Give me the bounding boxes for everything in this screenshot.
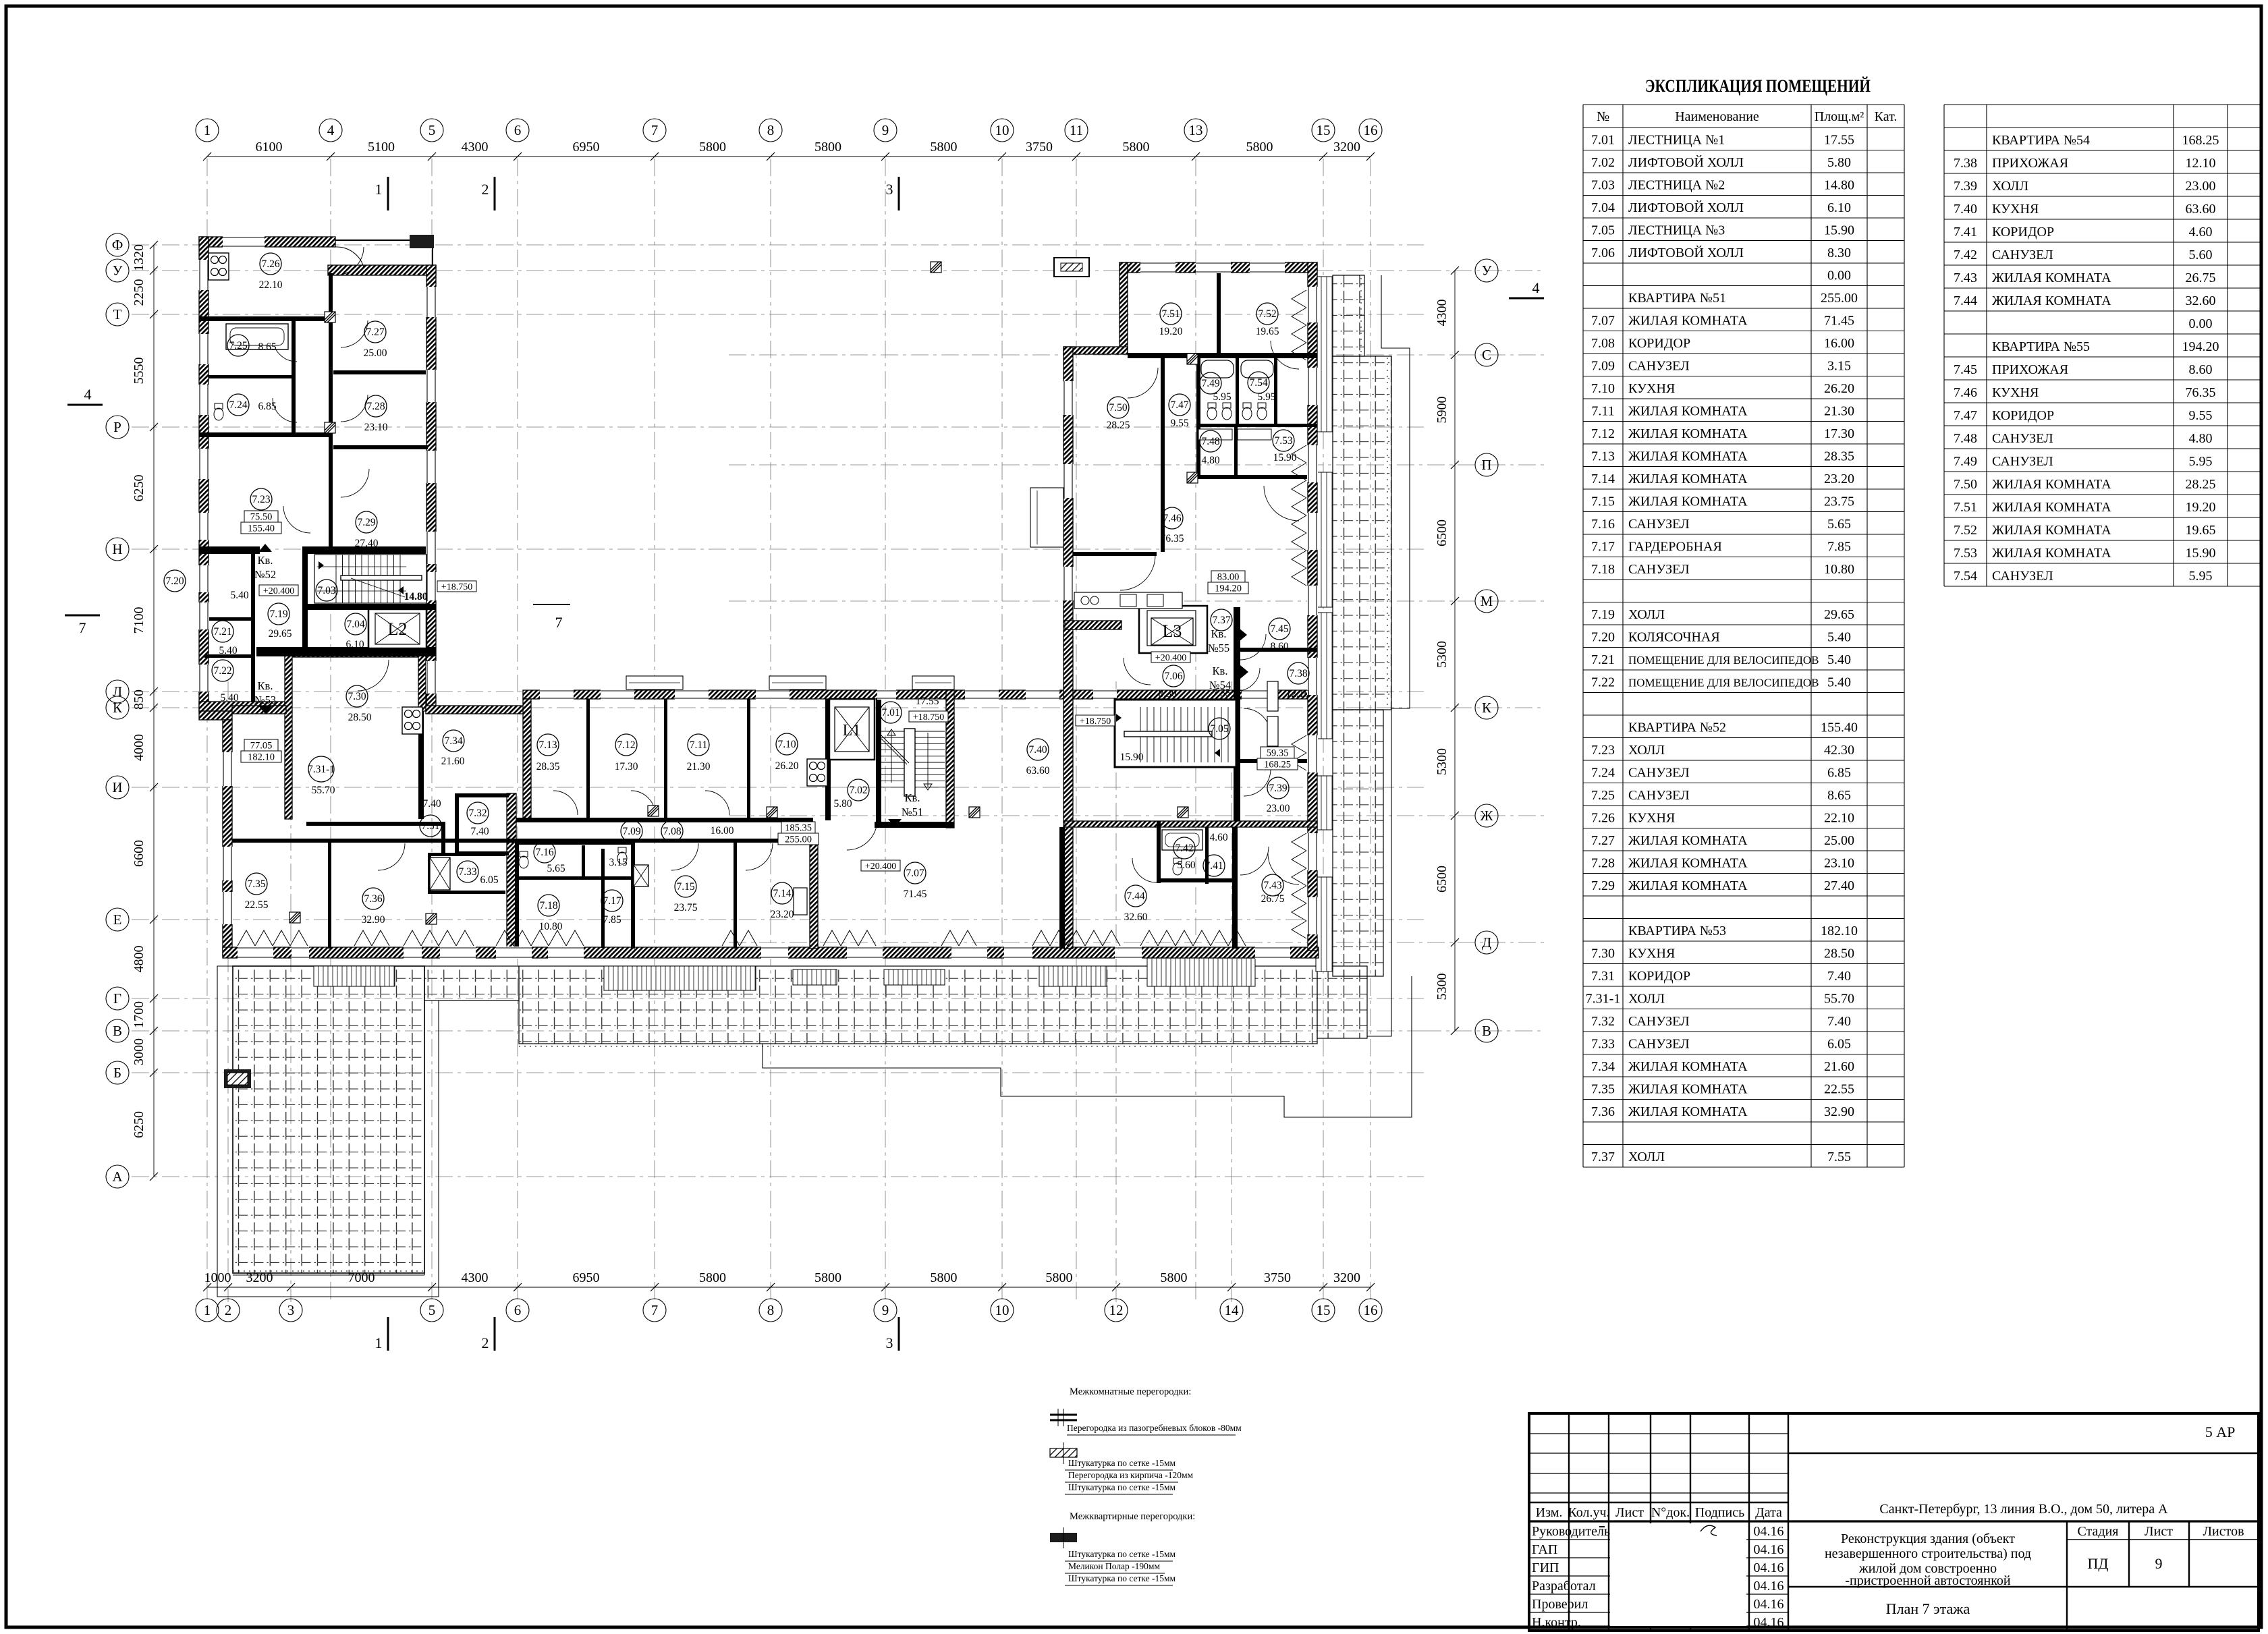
svg-text:3200: 3200 <box>1333 140 1360 154</box>
svg-text:5300: 5300 <box>1435 748 1449 775</box>
svg-text:42.30: 42.30 <box>1824 743 1854 758</box>
svg-text:63.60: 63.60 <box>1026 765 1050 777</box>
svg-text:10.80: 10.80 <box>1824 562 1854 577</box>
svg-text:14: 14 <box>1225 1302 1240 1318</box>
svg-text:15.90: 15.90 <box>1273 452 1297 463</box>
svg-text:55.70: 55.70 <box>312 785 335 796</box>
svg-text:ЖИЛАЯ КОМНАТА: ЖИЛАЯ КОМНАТА <box>1628 1104 1748 1119</box>
svg-text:6250: 6250 <box>132 1111 146 1138</box>
svg-text:71.45: 71.45 <box>1824 314 1854 329</box>
svg-text:8.30: 8.30 <box>1158 688 1176 700</box>
svg-text:4.80: 4.80 <box>2189 431 2213 446</box>
svg-text:76.35: 76.35 <box>2186 385 2216 400</box>
svg-text:28.35: 28.35 <box>536 761 560 772</box>
svg-text:7.31: 7.31 <box>1591 969 1615 984</box>
svg-text:12.10: 12.10 <box>2186 156 2216 171</box>
svg-text:7.34: 7.34 <box>444 735 462 747</box>
svg-text:6.10: 6.10 <box>1827 200 1851 215</box>
svg-text:ЖИЛАЯ КОМНАТА: ЖИЛАЯ КОМНАТА <box>1628 833 1748 848</box>
svg-text:+18.750: +18.750 <box>1080 716 1111 727</box>
svg-text:15: 15 <box>1317 1302 1331 1318</box>
svg-text:21.60: 21.60 <box>1824 1059 1854 1074</box>
svg-text:N°док.: N°док. <box>1651 1505 1690 1520</box>
svg-text:194.20: 194.20 <box>1215 584 1242 594</box>
svg-text:5800: 5800 <box>931 1270 958 1285</box>
svg-text:7.39: 7.39 <box>1954 179 1977 194</box>
svg-text:ЖИЛАЯ КОМНАТА: ЖИЛАЯ КОМНАТА <box>1992 293 2111 308</box>
svg-text:Кв.: Кв. <box>258 554 273 567</box>
svg-text:6500: 6500 <box>1435 866 1449 893</box>
svg-text:5.40: 5.40 <box>1827 675 1851 690</box>
svg-text:Т: Т <box>113 306 122 322</box>
svg-text:7.03: 7.03 <box>317 585 335 596</box>
svg-text:7.05: 7.05 <box>1210 723 1228 735</box>
svg-text:Штукатурка по сетке -15мм: Штукатурка по сетке -15мм <box>1068 1573 1176 1583</box>
svg-text:С: С <box>1482 347 1491 363</box>
svg-text:77.05: 77.05 <box>250 741 273 752</box>
svg-text:23.20: 23.20 <box>771 909 794 920</box>
svg-text:ХОЛЛ: ХОЛЛ <box>1628 992 1665 1007</box>
svg-text:КОЛЯСОЧНАЯ: КОЛЯСОЧНАЯ <box>1628 630 1720 645</box>
svg-text:2250: 2250 <box>132 279 146 306</box>
svg-text:7.37: 7.37 <box>1591 1150 1615 1164</box>
svg-text:5.40: 5.40 <box>219 645 237 656</box>
svg-text:Л: Л <box>113 683 122 700</box>
svg-text:Подпись: Подпись <box>1695 1505 1744 1520</box>
svg-text:7.21: 7.21 <box>213 626 231 638</box>
svg-text:9: 9 <box>882 1302 889 1318</box>
svg-text:7.29: 7.29 <box>1591 878 1615 893</box>
svg-text:32.90: 32.90 <box>362 914 385 926</box>
svg-text:7.22: 7.22 <box>1591 675 1615 690</box>
svg-text:ПОМЕЩЕНИЕ ДЛЯ ВЕЛОСИПЕДОВ: ПОМЕЩЕНИЕ ДЛЯ ВЕЛОСИПЕДОВ <box>1628 677 1819 689</box>
svg-text:Санкт-Петербург, 13 линия В.О.: Санкт-Петербург, 13 линия В.О., дом 50, … <box>1879 1502 2168 1517</box>
svg-text:Дата: Дата <box>1755 1505 1782 1520</box>
svg-text:4300: 4300 <box>462 140 489 154</box>
svg-text:7.19: 7.19 <box>1591 607 1615 622</box>
svg-text:16: 16 <box>1364 1302 1378 1318</box>
svg-text:САНУЗЕЛ: САНУЗЕЛ <box>1992 248 2053 262</box>
svg-text:7.28: 7.28 <box>366 401 385 412</box>
svg-text:7.31: 7.31 <box>421 820 439 832</box>
svg-text:10: 10 <box>995 122 1009 138</box>
svg-text:7.06: 7.06 <box>1164 671 1182 682</box>
svg-text:№52: №52 <box>254 568 276 581</box>
svg-text:7.26: 7.26 <box>1591 811 1615 826</box>
svg-text:7.20: 7.20 <box>1591 630 1615 645</box>
svg-text:8.30: 8.30 <box>1827 246 1851 260</box>
svg-text:САНУЗЕЛ: САНУЗЕЛ <box>1992 454 2053 469</box>
svg-text:7.03: 7.03 <box>1591 178 1615 193</box>
svg-text:ЛИФТОВОЙ ХОЛЛ: ЛИФТОВОЙ ХОЛЛ <box>1628 200 1744 215</box>
svg-text:26.75: 26.75 <box>1261 893 1285 905</box>
svg-text:7.09: 7.09 <box>622 826 640 837</box>
svg-text:6100: 6100 <box>256 140 283 154</box>
svg-text:16: 16 <box>1364 122 1378 138</box>
svg-text:3.15: 3.15 <box>609 857 627 868</box>
svg-text:Штукатурка по сетке -15мм: Штукатурка по сетке -15мм <box>1068 1482 1176 1492</box>
svg-text:7.27: 7.27 <box>366 327 384 338</box>
svg-text:7.10: 7.10 <box>1591 381 1615 396</box>
svg-text:7.37: 7.37 <box>1212 615 1230 626</box>
svg-text:5: 5 <box>428 122 436 138</box>
svg-text:Кв.: Кв. <box>1211 627 1227 640</box>
svg-text:11: 11 <box>1070 122 1083 138</box>
svg-text:04.16: 04.16 <box>1754 1560 1784 1575</box>
svg-text:ЛЕСТНИЦА №1: ЛЕСТНИЦА №1 <box>1628 133 1725 148</box>
svg-text:14.80: 14.80 <box>404 591 428 602</box>
svg-text:Реконструкция здания (объект: Реконструкция здания (объект <box>1841 1531 2015 1546</box>
svg-text:7.24: 7.24 <box>229 399 247 411</box>
svg-text:21.30: 21.30 <box>687 761 711 772</box>
svg-text:7.47: 7.47 <box>1170 399 1188 411</box>
svg-text:5.65: 5.65 <box>1827 517 1851 532</box>
svg-text:5.60: 5.60 <box>1177 860 1195 871</box>
svg-text:83.00: 83.00 <box>1217 572 1240 583</box>
svg-text:Лист: Лист <box>2145 1524 2173 1539</box>
svg-text:9: 9 <box>882 122 889 138</box>
svg-text:7.32: 7.32 <box>468 808 487 819</box>
svg-text:ЖИЛАЯ КОМНАТА: ЖИЛАЯ КОМНАТА <box>1992 271 2111 285</box>
svg-text:Д: Д <box>1482 934 1491 951</box>
svg-text:7.51: 7.51 <box>1954 500 1977 515</box>
svg-text:155.40: 155.40 <box>248 524 275 534</box>
svg-text:КУХНЯ: КУХНЯ <box>1992 202 2039 217</box>
svg-text:ЖИЛАЯ КОМНАТА: ЖИЛАЯ КОМНАТА <box>1628 878 1748 893</box>
svg-text:3200: 3200 <box>1333 1270 1360 1285</box>
svg-text:28.25: 28.25 <box>2186 477 2216 492</box>
svg-text:4000: 4000 <box>132 734 146 761</box>
svg-text:ЖИЛАЯ КОМНАТА: ЖИЛАЯ КОМНАТА <box>1628 426 1748 441</box>
svg-text:8.60: 8.60 <box>2189 362 2213 377</box>
svg-text:5 АР: 5 АР <box>2205 1424 2236 1440</box>
svg-text:№55: №55 <box>1208 642 1229 654</box>
svg-text:17.55: 17.55 <box>1824 133 1854 148</box>
svg-text:3.15: 3.15 <box>1827 359 1851 374</box>
svg-text:15.90: 15.90 <box>1824 223 1854 238</box>
svg-text:4: 4 <box>84 386 92 403</box>
svg-text:+20.400: +20.400 <box>1155 653 1186 663</box>
svg-text:П: П <box>1481 457 1491 473</box>
svg-text:7.40: 7.40 <box>1028 744 1047 756</box>
svg-text:7100: 7100 <box>132 607 146 634</box>
svg-text:7.45: 7.45 <box>1270 623 1288 635</box>
svg-text:7.18: 7.18 <box>539 900 557 911</box>
svg-text:22.10: 22.10 <box>1824 811 1854 826</box>
svg-text:5550: 5550 <box>132 358 146 385</box>
svg-text:15: 15 <box>1317 122 1331 138</box>
svg-text:7.01: 7.01 <box>881 707 900 719</box>
svg-text:6.05: 6.05 <box>1827 1037 1851 1052</box>
svg-text:Межкомнатные перегородки:: Межкомнатные перегородки: <box>1070 1386 1191 1397</box>
svg-text:В: В <box>113 1023 122 1039</box>
svg-text:6.10: 6.10 <box>345 639 364 650</box>
svg-text:7.55: 7.55 <box>1827 1150 1851 1164</box>
svg-text:5.95: 5.95 <box>1213 391 1231 403</box>
svg-text:В: В <box>1482 1023 1491 1039</box>
svg-text:незавершенного строительства): незавершенного строительства) под <box>1825 1546 2031 1561</box>
svg-text:7.46: 7.46 <box>1954 385 1977 400</box>
svg-text:Кв.: Кв. <box>1213 665 1228 677</box>
svg-text:7.47: 7.47 <box>1954 408 1977 423</box>
svg-text:ЖИЛАЯ КОМНАТА: ЖИЛАЯ КОМНАТА <box>1992 523 2111 538</box>
svg-text:ЖИЛАЯ КОМНАТА: ЖИЛАЯ КОМНАТА <box>1628 404 1748 419</box>
svg-text:КУХНЯ: КУХНЯ <box>1628 947 1675 961</box>
svg-text:32.90: 32.90 <box>1824 1104 1854 1119</box>
svg-text:ПРИХОЖАЯ: ПРИХОЖАЯ <box>1992 156 2068 171</box>
svg-text:У: У <box>1482 262 1492 279</box>
svg-text:+18.750: +18.750 <box>441 582 472 592</box>
svg-text:7: 7 <box>651 1302 659 1318</box>
svg-text:ЖИЛАЯ КОМНАТА: ЖИЛАЯ КОМНАТА <box>1628 856 1748 871</box>
svg-text:32.60: 32.60 <box>1124 911 1148 923</box>
svg-text:4300: 4300 <box>1435 300 1449 327</box>
svg-text:7.40: 7.40 <box>422 798 441 810</box>
svg-text:ХОЛЛ: ХОЛЛ <box>1628 1150 1665 1164</box>
svg-text:Листов: Листов <box>2203 1524 2244 1539</box>
svg-text:5.40: 5.40 <box>230 590 248 601</box>
svg-text:0.00: 0.00 <box>1827 269 1851 283</box>
svg-text:7.35: 7.35 <box>1591 1082 1615 1097</box>
svg-text:Лист: Лист <box>1615 1505 1644 1520</box>
svg-text:6: 6 <box>514 122 522 138</box>
svg-text:5800: 5800 <box>814 1270 841 1285</box>
svg-text:7.08: 7.08 <box>1591 336 1615 351</box>
svg-text:7.27: 7.27 <box>1591 833 1615 848</box>
svg-text:5800: 5800 <box>814 140 841 154</box>
svg-text:7.11: 7.11 <box>690 739 708 751</box>
svg-text:7.09: 7.09 <box>1591 359 1615 374</box>
svg-text:ПОМЕЩЕНИЕ ДЛЯ ВЕЛОСИПЕДОВ: ПОМЕЩЕНИЕ ДЛЯ ВЕЛОСИПЕДОВ <box>1628 654 1819 667</box>
svg-text:ЖИЛАЯ КОМНАТА: ЖИЛАЯ КОМНАТА <box>1628 472 1748 486</box>
svg-text:1: 1 <box>375 181 383 198</box>
svg-text:7.05: 7.05 <box>1591 223 1615 238</box>
svg-text:7.50: 7.50 <box>1109 402 1127 414</box>
svg-text:САНУЗЕЛ: САНУЗЕЛ <box>1628 766 1690 781</box>
svg-text:26.20: 26.20 <box>1824 381 1854 396</box>
svg-text:+20.400: +20.400 <box>865 862 896 872</box>
svg-text:7.17: 7.17 <box>1591 540 1615 555</box>
svg-text:59.35: 59.35 <box>1267 748 1289 759</box>
svg-text:16.00: 16.00 <box>711 825 734 837</box>
svg-text:7.06: 7.06 <box>1591 246 1615 260</box>
svg-text:7.13: 7.13 <box>538 739 557 751</box>
svg-text:5800: 5800 <box>1161 1270 1188 1285</box>
svg-text:6.85: 6.85 <box>258 401 276 412</box>
svg-text:7.40: 7.40 <box>1827 969 1851 984</box>
svg-text:28.50: 28.50 <box>348 712 372 723</box>
svg-text:27.40: 27.40 <box>355 538 379 549</box>
svg-text:7.35: 7.35 <box>247 878 265 890</box>
svg-text:4: 4 <box>1532 279 1540 296</box>
svg-text:7: 7 <box>555 614 563 631</box>
svg-text:1700: 1700 <box>132 1001 146 1028</box>
svg-text:7.32: 7.32 <box>1591 1014 1615 1029</box>
svg-text:6950: 6950 <box>573 1270 600 1285</box>
svg-text:Изм.: Изм. <box>1536 1505 1563 1520</box>
svg-text:А: А <box>112 1168 123 1185</box>
svg-text:04.16: 04.16 <box>1754 1542 1784 1557</box>
svg-text:4800: 4800 <box>132 946 146 973</box>
svg-text:5.40: 5.40 <box>1827 630 1851 645</box>
svg-text:7.04: 7.04 <box>1591 200 1615 215</box>
svg-text:7.15: 7.15 <box>676 881 694 893</box>
svg-text:КОРИДОР: КОРИДОР <box>1992 408 2054 423</box>
svg-text:3: 3 <box>287 1302 295 1318</box>
svg-text:7.41: 7.41 <box>1205 860 1223 872</box>
svg-text:5.95: 5.95 <box>2189 454 2213 469</box>
svg-text:7.31-1: 7.31-1 <box>1586 992 1621 1007</box>
svg-text:7.38: 7.38 <box>1954 156 1977 171</box>
svg-text:Межквартирные перегородки:: Межквартирные перегородки: <box>1070 1511 1195 1522</box>
svg-text:7.43: 7.43 <box>1263 880 1281 891</box>
svg-text:ГАП: ГАП <box>1532 1542 1557 1557</box>
svg-text:3750: 3750 <box>1026 140 1053 154</box>
svg-text:7.21: 7.21 <box>1591 652 1615 667</box>
svg-text:Кат.: Кат. <box>1875 109 1898 124</box>
svg-text:САНУЗЕЛ: САНУЗЕЛ <box>1992 431 2053 446</box>
svg-text:ЭКСПЛИКАЦИЯ ПОМЕЩЕНИЙ: ЭКСПЛИКАЦИЯ ПОМЕЩЕНИЙ <box>1645 76 1871 96</box>
svg-text:4.80: 4.80 <box>1201 455 1219 466</box>
svg-text:5.65: 5.65 <box>547 863 565 874</box>
svg-text:7.49: 7.49 <box>1201 378 1219 389</box>
svg-text:Р: Р <box>113 419 121 435</box>
svg-text:7.08: 7.08 <box>663 826 681 837</box>
svg-text:7.19: 7.19 <box>269 609 287 620</box>
svg-text:САНУЗЕЛ: САНУЗЕЛ <box>1992 569 2053 584</box>
svg-text:ЖИЛАЯ КОМНАТА: ЖИЛАЯ КОМНАТА <box>1628 449 1748 464</box>
svg-text:7.52: 7.52 <box>1258 308 1276 320</box>
svg-text:17.30: 17.30 <box>615 761 638 772</box>
svg-text:КВАРТИРА №52: КВАРТИРА №52 <box>1628 721 1726 735</box>
svg-text:5800: 5800 <box>1123 140 1150 154</box>
svg-text:ХОЛЛ: ХОЛЛ <box>1992 179 2028 194</box>
svg-text:7.48: 7.48 <box>1201 436 1219 447</box>
svg-text:Проверил: Проверил <box>1532 1597 1588 1612</box>
svg-text:7.33: 7.33 <box>458 866 476 878</box>
svg-text:7.53: 7.53 <box>1274 435 1292 447</box>
svg-text:Кол.уч.: Кол.уч. <box>1568 1505 1609 1520</box>
svg-text:7.54: 7.54 <box>1954 569 1977 584</box>
svg-text:Н: Н <box>112 541 122 557</box>
svg-text:7.40: 7.40 <box>1954 202 1977 217</box>
svg-text:185.35: 185.35 <box>785 823 812 834</box>
svg-text:6950: 6950 <box>573 140 600 154</box>
svg-text:14.80: 14.80 <box>1824 178 1854 193</box>
svg-text:1320: 1320 <box>132 244 146 271</box>
svg-text:-пристроенной автостоянкой: -пристроенной автостоянкой <box>1845 1573 2011 1588</box>
svg-text:У: У <box>113 262 123 279</box>
svg-text:КОРИДОР: КОРИДОР <box>1628 969 1690 984</box>
svg-text:5.95: 5.95 <box>2189 569 2213 584</box>
svg-text:7.44: 7.44 <box>1126 891 1144 902</box>
svg-text:КУХНЯ: КУХНЯ <box>1628 811 1675 826</box>
svg-text:Ф: Ф <box>112 237 123 253</box>
svg-text:ЖИЛАЯ КОМНАТА: ЖИЛАЯ КОМНАТА <box>1628 314 1748 329</box>
svg-text:7.25: 7.25 <box>229 340 247 351</box>
svg-text:7.36: 7.36 <box>1591 1104 1615 1119</box>
svg-text:Кв.: Кв. <box>905 791 920 804</box>
svg-text:04.16: 04.16 <box>1754 1615 1784 1630</box>
svg-text:7.31-1: 7.31-1 <box>308 764 335 775</box>
svg-text:28.50: 28.50 <box>1824 947 1854 961</box>
svg-text:7.30: 7.30 <box>1591 947 1615 961</box>
svg-text:15.90: 15.90 <box>2186 546 2216 561</box>
svg-text:Меликон Полар -190мм: Меликон Полар -190мм <box>1068 1561 1160 1571</box>
svg-text:№: № <box>1597 109 1609 124</box>
svg-text:7: 7 <box>79 619 86 636</box>
svg-text:7.25: 7.25 <box>1591 788 1615 803</box>
svg-text:КОРИДОР: КОРИДОР <box>1992 225 2054 240</box>
svg-text:САНУЗЕЛ: САНУЗЕЛ <box>1628 562 1690 577</box>
svg-text:7.10: 7.10 <box>777 739 796 750</box>
svg-text:ГАРДЕРОБНАЯ: ГАРДЕРОБНАЯ <box>1628 540 1722 555</box>
svg-text:7.02: 7.02 <box>849 785 867 796</box>
svg-text:5.40: 5.40 <box>1827 652 1851 667</box>
svg-text:КОРИДОР: КОРИДОР <box>1628 336 1690 351</box>
svg-text:5800: 5800 <box>1246 140 1273 154</box>
svg-text:32.60: 32.60 <box>2186 293 2216 308</box>
svg-text:8.65: 8.65 <box>258 341 276 353</box>
svg-text:7.34: 7.34 <box>1591 1059 1615 1074</box>
svg-text:7.85: 7.85 <box>1827 540 1851 555</box>
svg-text:Е: Е <box>113 911 122 928</box>
svg-text:7.24: 7.24 <box>1591 766 1615 781</box>
svg-text:182.10: 182.10 <box>1821 924 1858 938</box>
svg-text:1: 1 <box>204 122 211 138</box>
svg-text:7.12: 7.12 <box>1591 426 1615 441</box>
svg-text:5800: 5800 <box>699 1270 726 1285</box>
svg-text:ЛИФТОВОЙ ХОЛЛ: ЛИФТОВОЙ ХОЛЛ <box>1628 245 1744 260</box>
svg-text:29.65: 29.65 <box>1824 607 1854 622</box>
svg-text:Б: Б <box>113 1065 121 1081</box>
svg-text:7.52: 7.52 <box>1954 523 1977 538</box>
svg-text:6.85: 6.85 <box>1827 766 1851 781</box>
svg-text:6500: 6500 <box>1435 519 1449 546</box>
svg-text:ЖИЛАЯ КОМНАТА: ЖИЛАЯ КОМНАТА <box>1628 495 1748 509</box>
svg-text:КВАРТИРА №54: КВАРТИРА №54 <box>1992 133 2090 148</box>
svg-text:7.14: 7.14 <box>773 888 791 899</box>
svg-text:2: 2 <box>225 1302 232 1318</box>
svg-text:28.25: 28.25 <box>1107 420 1130 431</box>
svg-text:Кв.: Кв. <box>258 679 273 692</box>
svg-text:7.18: 7.18 <box>1591 562 1615 577</box>
svg-text:Н.контр.: Н.контр. <box>1532 1615 1581 1630</box>
svg-text:5800: 5800 <box>699 140 726 154</box>
svg-text:16.00: 16.00 <box>1824 336 1854 351</box>
svg-text:28.35: 28.35 <box>1824 449 1854 464</box>
svg-text:5300: 5300 <box>1435 641 1449 668</box>
svg-text:23.00: 23.00 <box>2186 179 2216 194</box>
svg-text:7.11: 7.11 <box>1591 404 1614 419</box>
svg-text:5.95: 5.95 <box>1257 391 1275 403</box>
svg-text:25.00: 25.00 <box>364 347 387 359</box>
svg-text:2: 2 <box>482 181 489 198</box>
svg-text:ГИП: ГИП <box>1532 1560 1559 1575</box>
svg-text:10: 10 <box>995 1302 1009 1318</box>
svg-text:19.65: 19.65 <box>1256 326 1279 337</box>
svg-text:6.05: 6.05 <box>480 874 498 886</box>
svg-text:ЖИЛАЯ КОМНАТА: ЖИЛАЯ КОМНАТА <box>1628 1082 1748 1097</box>
svg-text:Стадия: Стадия <box>2077 1524 2118 1539</box>
svg-text:Перегородка из пазогребневых б: Перегородка из пазогребневых блоков -80м… <box>1067 1423 1242 1433</box>
svg-text:7: 7 <box>651 122 659 138</box>
svg-text:0.00: 0.00 <box>2189 316 2213 331</box>
svg-text:САНУЗЕЛ: САНУЗЕЛ <box>1628 788 1690 803</box>
svg-text:КВАРТИРА №53: КВАРТИРА №53 <box>1628 924 1726 938</box>
svg-text:255.00: 255.00 <box>1821 291 1858 306</box>
svg-text:7.38: 7.38 <box>1289 668 1307 679</box>
